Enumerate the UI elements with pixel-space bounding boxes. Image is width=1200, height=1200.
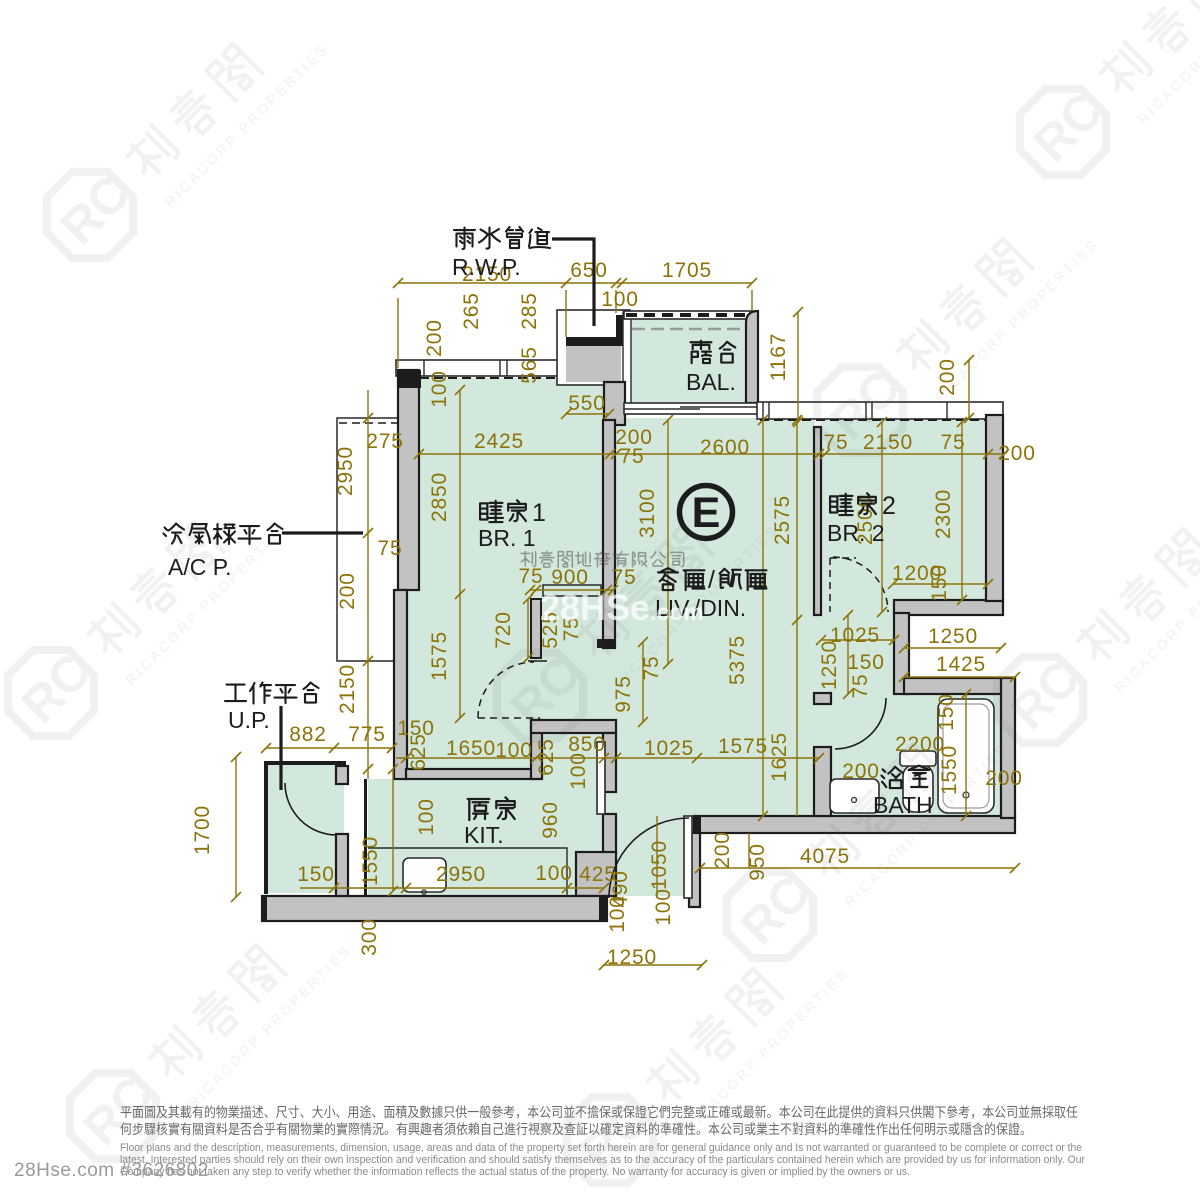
- svg-text:275: 275: [366, 430, 403, 453]
- svg-text:1: 1: [532, 499, 546, 527]
- svg-text:28Hse.com #3626802: 28Hse.com #3626802: [14, 1160, 209, 1181]
- svg-text:100: 100: [415, 798, 438, 835]
- svg-text:200: 200: [998, 442, 1035, 465]
- svg-text:1700: 1700: [191, 805, 214, 855]
- svg-text:200: 200: [711, 831, 734, 868]
- svg-text:1250: 1250: [928, 625, 978, 648]
- svg-text:R.W.P.: R.W.P.: [452, 254, 521, 280]
- svg-text:150: 150: [847, 651, 884, 674]
- svg-text:2150: 2150: [336, 664, 359, 714]
- svg-text:75: 75: [620, 445, 645, 468]
- svg-text:490: 490: [609, 870, 632, 907]
- svg-text:625: 625: [535, 738, 558, 775]
- svg-text:900: 900: [551, 566, 588, 589]
- svg-text:E: E: [692, 489, 721, 537]
- svg-text:265: 265: [460, 292, 483, 329]
- svg-text:2950: 2950: [436, 863, 486, 886]
- svg-text:BAL.: BAL.: [686, 369, 736, 395]
- svg-text:2300: 2300: [932, 489, 955, 539]
- svg-text:1650: 1650: [446, 737, 496, 760]
- svg-text:150: 150: [297, 863, 334, 886]
- svg-text:882: 882: [289, 723, 326, 746]
- svg-text:200: 200: [423, 319, 446, 356]
- svg-text:1575: 1575: [718, 735, 768, 758]
- svg-text:100: 100: [652, 888, 675, 925]
- svg-text:1705: 1705: [662, 259, 712, 282]
- svg-text:BR. 2: BR. 2: [827, 520, 885, 546]
- svg-text:何步驟核實有關資料是否合乎有關物業的實際情況。有興趣者須依賴: 何步驟核實有關資料是否合乎有關物業的實際情況。有興趣者須依賴自己進行視察及查証以…: [120, 1121, 1032, 1137]
- svg-text:U.P.: U.P.: [228, 707, 270, 733]
- svg-text:200: 200: [842, 760, 879, 783]
- svg-text:5375: 5375: [726, 635, 749, 685]
- svg-text:75: 75: [849, 674, 872, 699]
- svg-text:200: 200: [336, 572, 359, 609]
- svg-text:2: 2: [882, 492, 896, 520]
- svg-text:300: 300: [358, 918, 381, 955]
- svg-text:1250: 1250: [607, 946, 657, 969]
- svg-text:latest. Interested parties sho: latest. Interested parties should rely o…: [120, 1154, 1085, 1166]
- svg-text:150: 150: [935, 693, 958, 730]
- svg-text:625: 625: [407, 733, 430, 770]
- svg-text:1550: 1550: [359, 836, 382, 886]
- svg-text:100: 100: [535, 862, 572, 885]
- svg-text:Floor plans and the descriptio: Floor plans and the description, measure…: [120, 1142, 1082, 1154]
- svg-text:100: 100: [428, 370, 451, 407]
- svg-text:2425: 2425: [474, 430, 524, 453]
- svg-text:1625: 1625: [768, 732, 791, 782]
- svg-text:1050: 1050: [648, 840, 671, 890]
- svg-text:3100: 3100: [636, 488, 659, 538]
- svg-text:565: 565: [518, 346, 541, 383]
- svg-text:75: 75: [519, 565, 544, 588]
- svg-text:775: 775: [348, 723, 385, 746]
- svg-text:650: 650: [570, 259, 607, 282]
- svg-text:1250: 1250: [818, 640, 841, 690]
- svg-text:960: 960: [539, 801, 562, 838]
- svg-text:150: 150: [928, 564, 951, 601]
- svg-text:2850: 2850: [428, 472, 451, 522]
- svg-text:1425: 1425: [936, 653, 986, 676]
- svg-text:75: 75: [612, 566, 637, 589]
- svg-text:285: 285: [518, 292, 541, 329]
- svg-text:100: 100: [601, 288, 638, 311]
- svg-text:75: 75: [941, 431, 966, 454]
- svg-text:100: 100: [567, 752, 590, 789]
- svg-text:1575: 1575: [428, 631, 451, 681]
- svg-text:Company has not taken any step: Company has not taken any step to verify…: [120, 1166, 910, 1178]
- svg-text:550: 550: [568, 392, 605, 415]
- svg-text:1025: 1025: [644, 737, 694, 760]
- svg-text:2950: 2950: [334, 446, 357, 496]
- svg-text:2600: 2600: [700, 436, 750, 459]
- svg-text:1167: 1167: [767, 333, 790, 381]
- svg-text:KIT.: KIT.: [464, 822, 504, 848]
- svg-text:平面圖及其載有的物業描述、尺寸、大小、用途、面積及數據只供一: 平面圖及其載有的物業描述、尺寸、大小、用途、面積及數據只供一般參考，本公司並不擔…: [120, 1104, 1078, 1120]
- svg-text:BR. 1: BR. 1: [478, 525, 536, 551]
- svg-text:720: 720: [492, 611, 515, 648]
- svg-text:75: 75: [378, 537, 403, 560]
